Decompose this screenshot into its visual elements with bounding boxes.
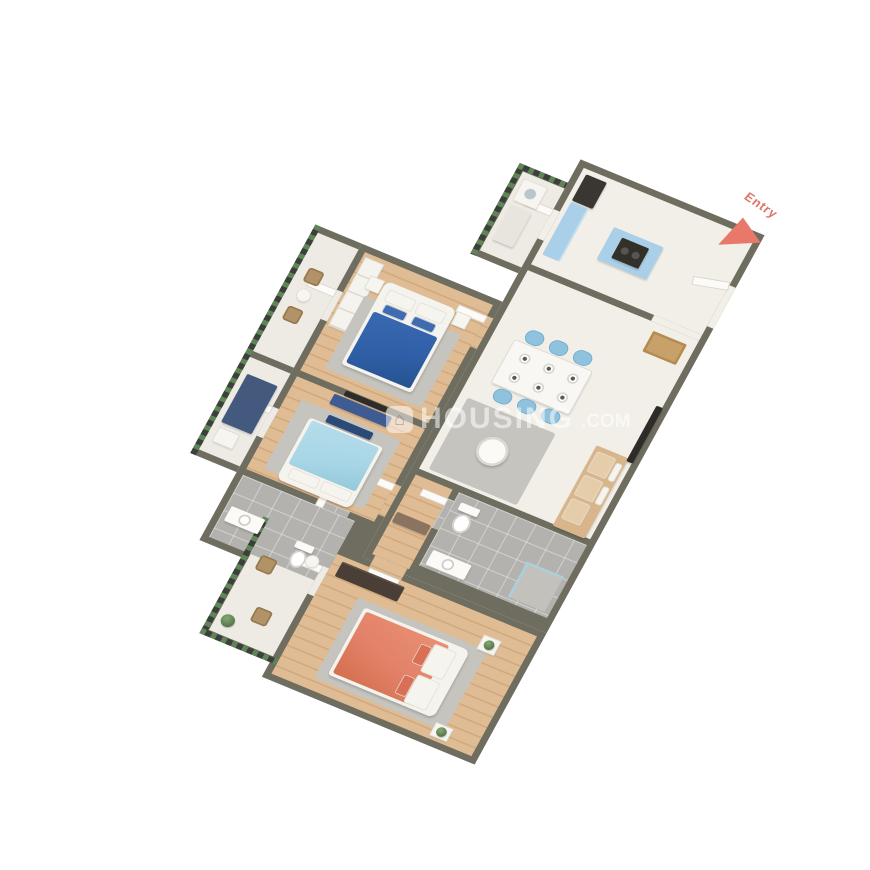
- floorplan-canvas: Entry ⌂ HOUSING .COM: [0, 0, 870, 870]
- floorplan-scene: Entry: [103, 90, 811, 795]
